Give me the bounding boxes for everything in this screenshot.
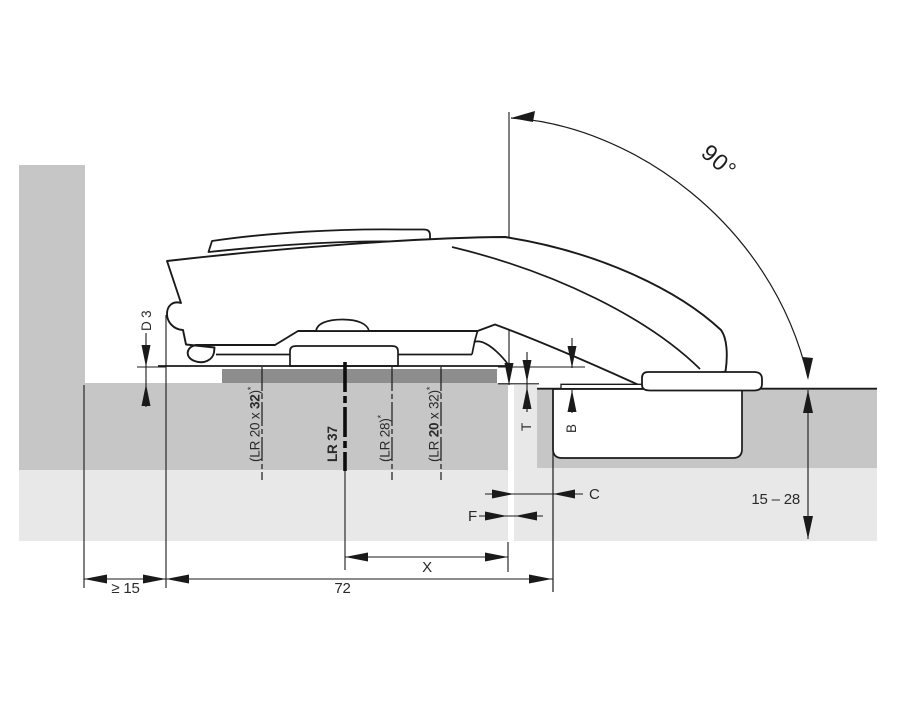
dim-x-label: X [413, 559, 441, 576]
right-foot-curve [472, 341, 509, 365]
door-pocket [553, 389, 742, 458]
door-thin-plate [561, 384, 643, 388]
drill-row-label-1: (LR 20 x 32)* [244, 387, 263, 462]
arm-end-cap [642, 372, 762, 391]
clearance-label: ≥ 15 [98, 580, 153, 597]
cabinet-panel-thickness-zone [19, 470, 508, 541]
drill-row-label-4: (LR 20 x 32)* [423, 387, 442, 462]
side-wall-panel [19, 165, 85, 383]
door-thickness-zone [537, 468, 877, 541]
arc-arrow-bottom [803, 357, 814, 380]
dim-t-label: T [519, 423, 534, 431]
drill-row-label-3: (LR 28)* [374, 415, 393, 462]
dim-f-label: F [468, 508, 477, 525]
door-thickness-label: 15 – 28 [748, 491, 800, 508]
right-step [475, 331, 478, 342]
technical-drawing: 90° D 3 (LR 20 x 32)* LR 37 (LR 28)* (LR… [0, 0, 899, 709]
arc-arrow-top [511, 111, 535, 122]
recess-strip [222, 369, 497, 383]
dim-b-label: B [564, 424, 579, 433]
length-72-label: 72 [320, 580, 365, 597]
dim-c-label: C [589, 486, 600, 503]
drawing-geometry [0, 0, 899, 709]
recess-depth-label: D 3 [139, 311, 154, 331]
fitting-body [167, 237, 727, 386]
drill-row-label-2: LR 37 [325, 426, 340, 462]
